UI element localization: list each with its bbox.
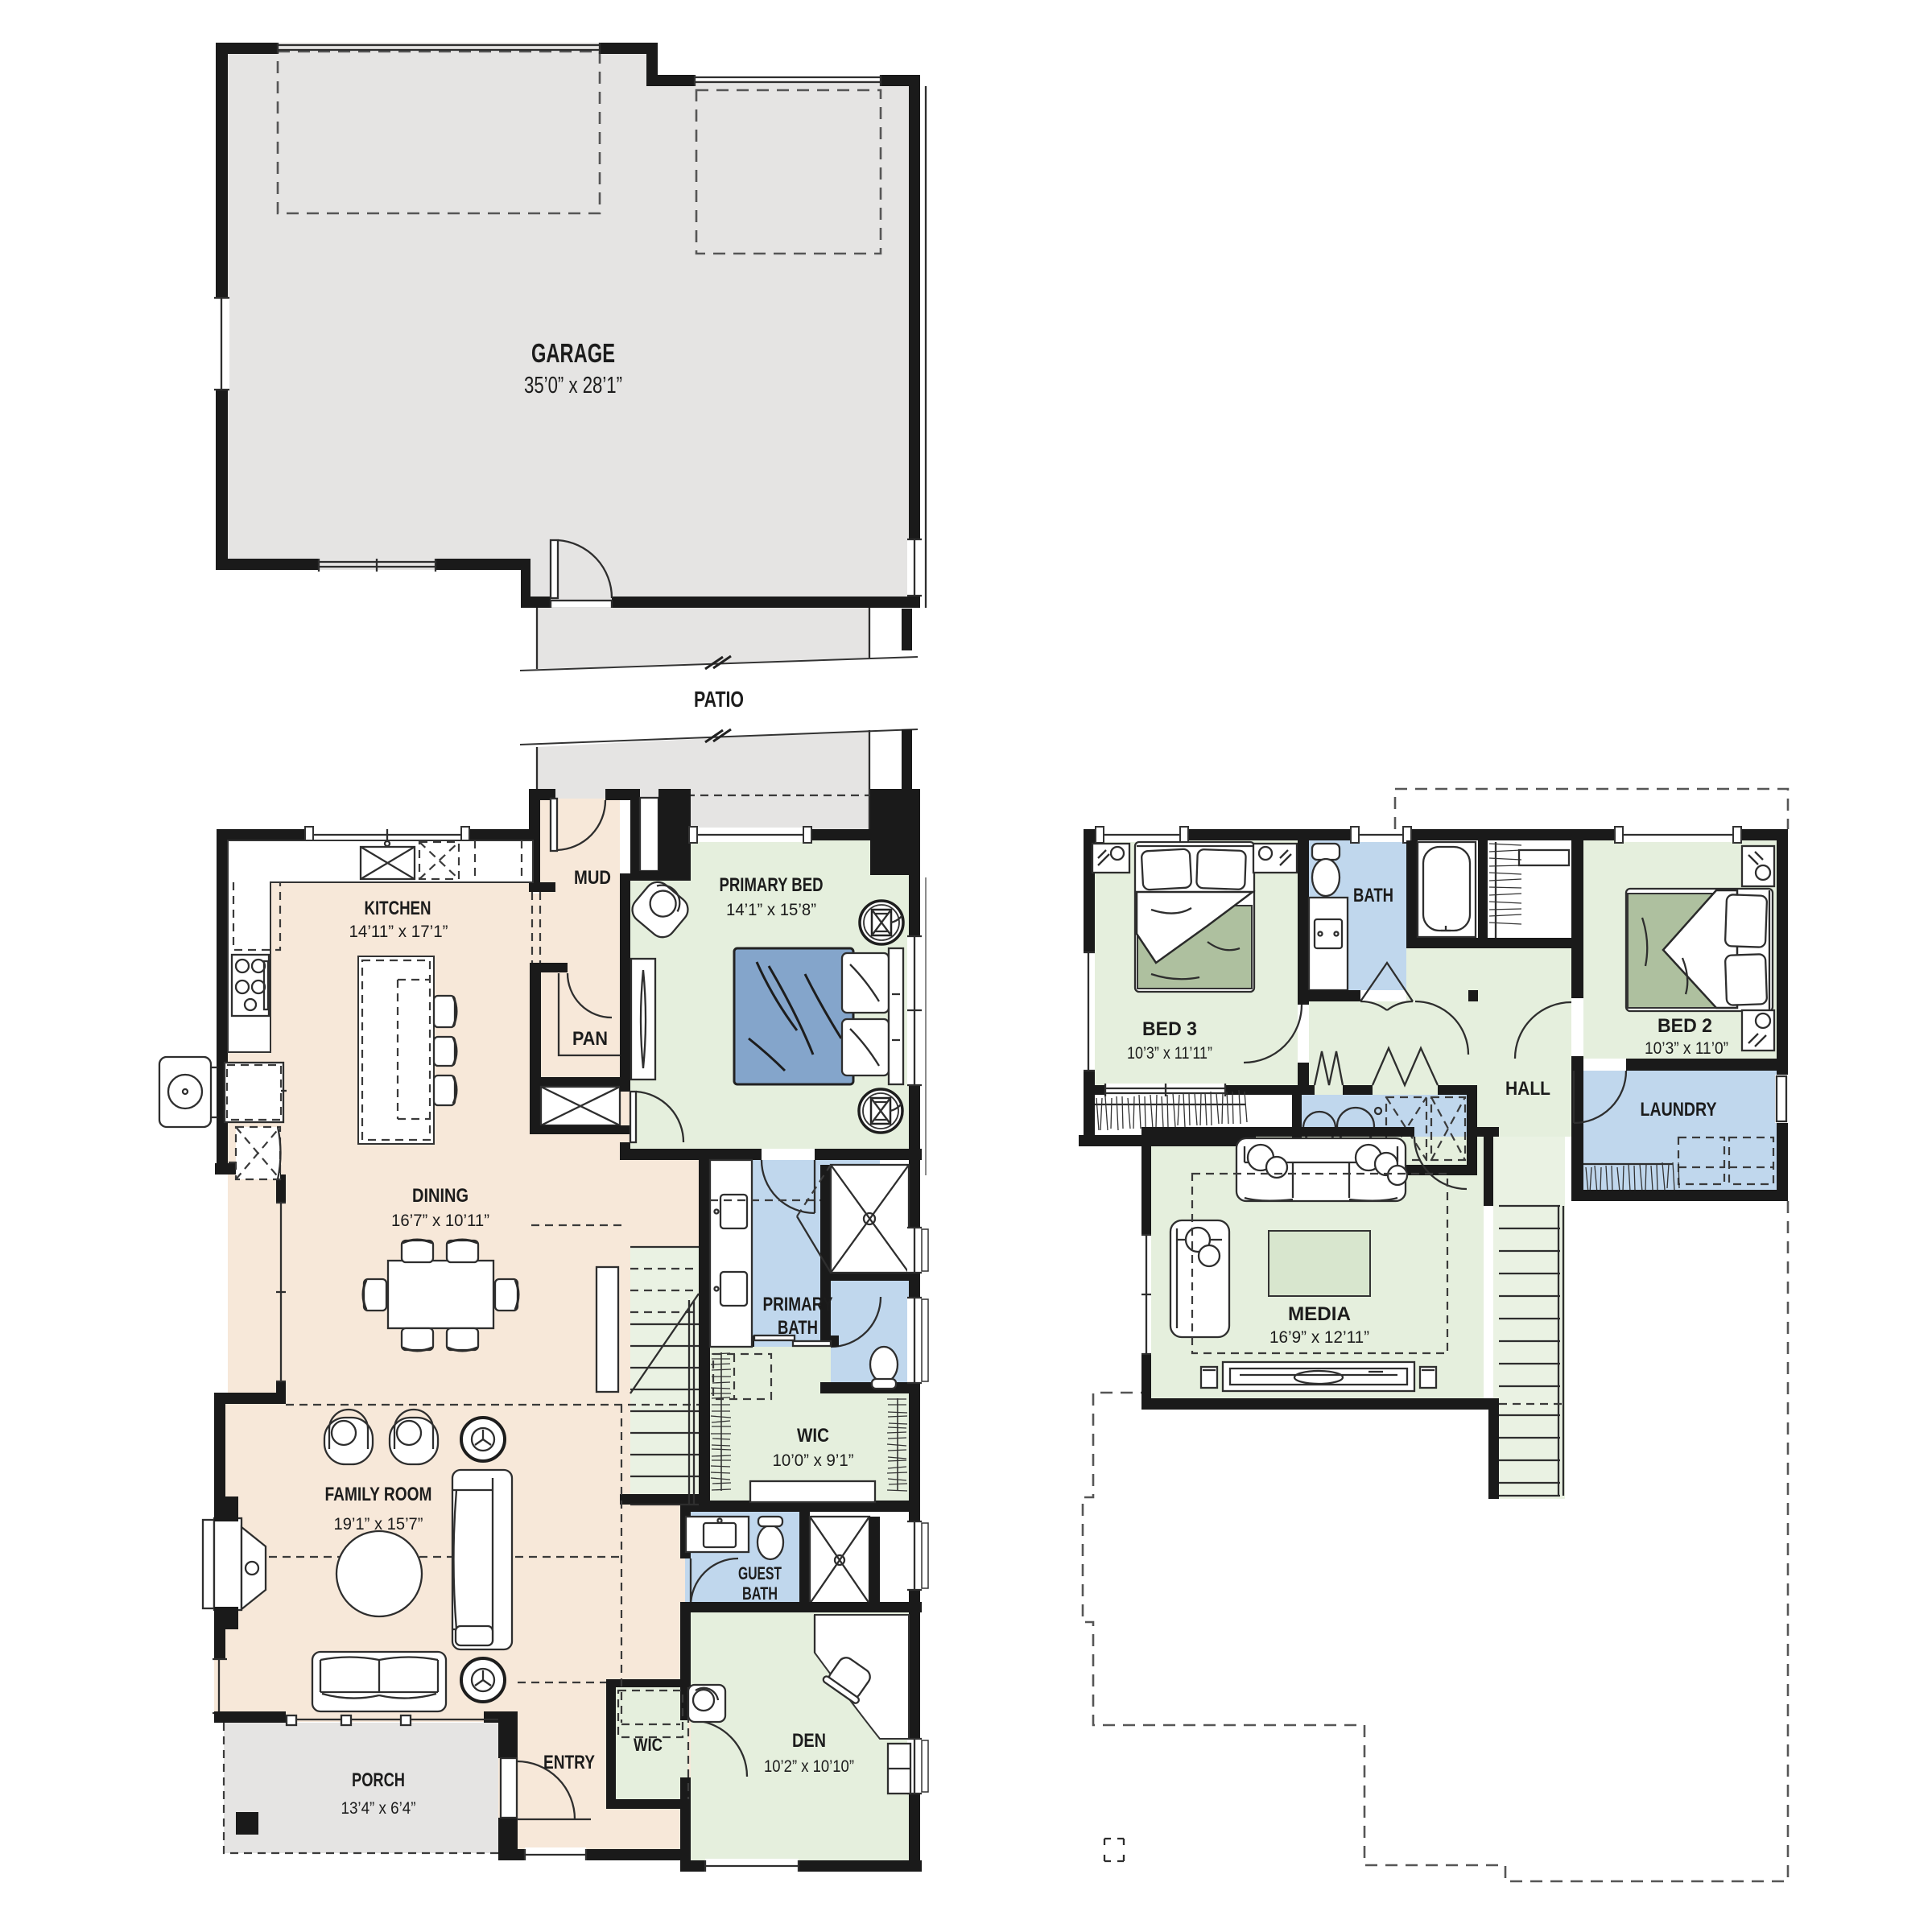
svg-text:DINING: DINING bbox=[412, 1185, 469, 1207]
svg-text:10’3” x 11’0”: 10’3” x 11’0” bbox=[1645, 1038, 1728, 1058]
svg-text:PRIMARY BED: PRIMARY BED bbox=[720, 874, 824, 896]
svg-text:BATH: BATH bbox=[778, 1317, 818, 1339]
svg-text:BATH: BATH bbox=[742, 1583, 778, 1604]
svg-text:BED 2: BED 2 bbox=[1657, 1015, 1712, 1037]
svg-text:16’7” x 10’11”: 16’7” x 10’11” bbox=[391, 1211, 489, 1230]
svg-text:16’9” x 12’11”: 16’9” x 12’11” bbox=[1269, 1327, 1369, 1347]
svg-text:35’0” x 28’1”: 35’0” x 28’1” bbox=[524, 373, 622, 398]
svg-text:FAMILY ROOM: FAMILY ROOM bbox=[325, 1484, 432, 1505]
svg-text:BED 3: BED 3 bbox=[1142, 1018, 1197, 1040]
svg-text:HALL: HALL bbox=[1505, 1078, 1550, 1100]
svg-text:MEDIA: MEDIA bbox=[1288, 1303, 1351, 1325]
svg-text:DEN: DEN bbox=[792, 1730, 826, 1752]
svg-text:19’1” x 15’7”: 19’1” x 15’7” bbox=[334, 1514, 423, 1534]
svg-text:KITCHEN: KITCHEN bbox=[365, 898, 431, 919]
svg-text:13’4” x 6’4”: 13’4” x 6’4” bbox=[341, 1798, 416, 1818]
svg-text:PORCH: PORCH bbox=[352, 1769, 405, 1791]
svg-text:GARAGE: GARAGE bbox=[531, 338, 615, 368]
svg-text:WIC: WIC bbox=[797, 1425, 829, 1447]
svg-text:PRIMARY: PRIMARY bbox=[763, 1294, 833, 1315]
svg-text:LAUNDRY: LAUNDRY bbox=[1641, 1099, 1717, 1121]
svg-text:10’2” x 10’10”: 10’2” x 10’10” bbox=[764, 1757, 854, 1776]
svg-text:MUD: MUD bbox=[574, 867, 611, 889]
svg-text:ENTRY: ENTRY bbox=[543, 1752, 595, 1773]
svg-text:PAN: PAN bbox=[572, 1028, 608, 1050]
svg-text:10’0” x 9’1”: 10’0” x 9’1” bbox=[773, 1451, 854, 1470]
svg-text:BATH: BATH bbox=[1353, 885, 1393, 906]
svg-text:14’11” x 17’1”: 14’11” x 17’1” bbox=[349, 922, 448, 941]
svg-text:GUEST: GUEST bbox=[738, 1563, 782, 1583]
svg-text:10’3” x 11’11”: 10’3” x 11’11” bbox=[1127, 1043, 1212, 1063]
svg-text:14’1” x 15’8”: 14’1” x 15’8” bbox=[726, 900, 816, 919]
svg-text:WIC: WIC bbox=[634, 1735, 663, 1755]
svg-text:PATIO: PATIO bbox=[694, 687, 744, 712]
